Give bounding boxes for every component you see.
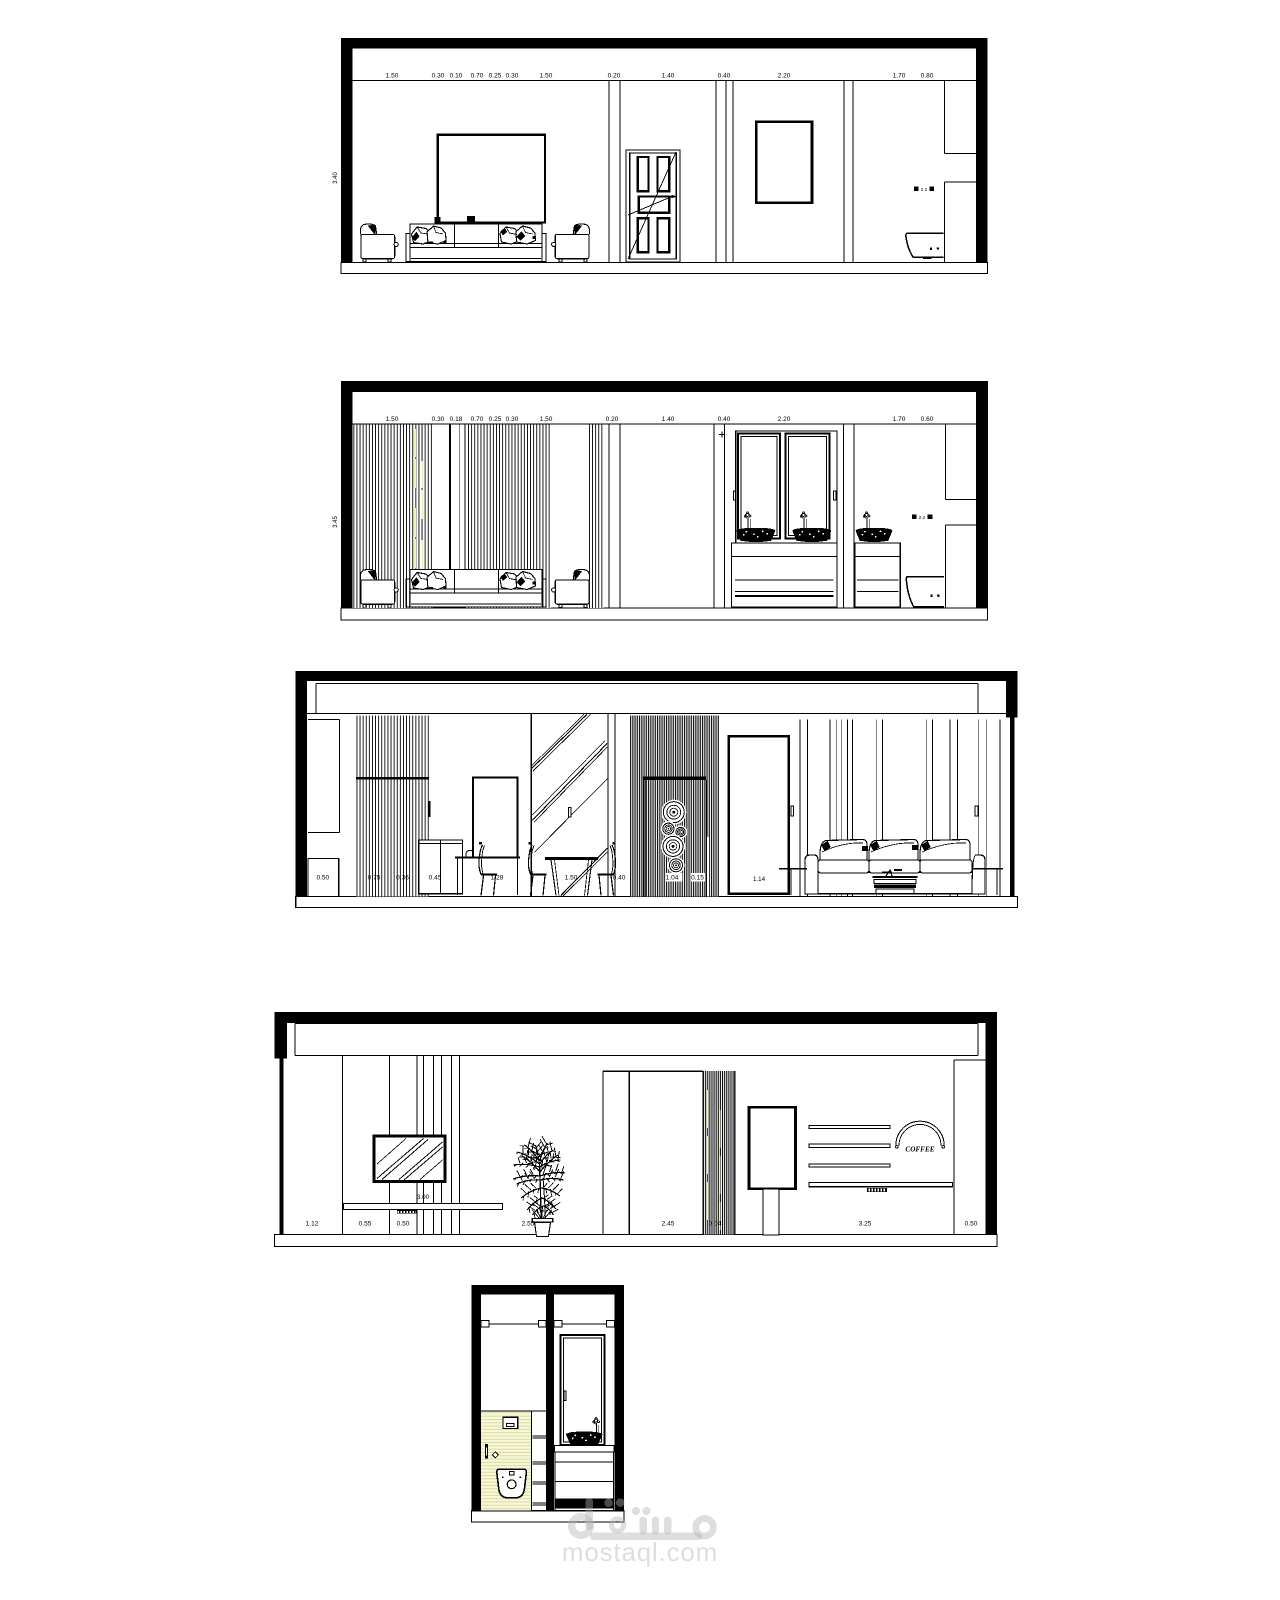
svg-text:0.40: 0.40 <box>718 73 731 80</box>
svg-text:0.50: 0.50 <box>965 1221 978 1228</box>
svg-text:2.20: 2.20 <box>778 416 791 423</box>
svg-text:0.15: 0.15 <box>691 875 704 882</box>
svg-text:3.40: 3.40 <box>333 172 339 184</box>
svg-text:0.18: 0.18 <box>450 416 463 423</box>
svg-text:1.40: 1.40 <box>662 73 675 80</box>
svg-text:0.40: 0.40 <box>718 416 731 423</box>
svg-text:0.20: 0.20 <box>606 416 619 423</box>
svg-text:1.28: 1.28 <box>491 875 504 882</box>
svg-text:0.75: 0.75 <box>368 875 381 882</box>
svg-text:1.40: 1.40 <box>662 416 675 423</box>
svg-text:0.70: 0.70 <box>471 416 484 423</box>
svg-text:0.30: 0.30 <box>506 73 519 80</box>
svg-text:0.25: 0.25 <box>489 73 502 80</box>
svg-text:1.14: 1.14 <box>753 876 766 883</box>
svg-text:3.25: 3.25 <box>859 1221 872 1228</box>
svg-text:0.30: 0.30 <box>506 416 519 423</box>
svg-text:0.36: 0.36 <box>396 875 409 882</box>
svg-text:2.55: 2.55 <box>522 1221 535 1228</box>
svg-text:0.50: 0.50 <box>397 1221 410 1228</box>
svg-text:0.50: 0.50 <box>316 875 329 882</box>
svg-text:1.50: 1.50 <box>386 73 399 80</box>
svg-text:0.55: 0.55 <box>359 1221 372 1228</box>
svg-text:1.50: 1.50 <box>540 416 553 423</box>
svg-text:1.50: 1.50 <box>565 875 578 882</box>
svg-text:1.50: 1.50 <box>386 416 399 423</box>
svg-text:2.2: 2.2 <box>921 187 928 193</box>
svg-text:3.00: 3.00 <box>417 1194 430 1201</box>
svg-text:0.10: 0.10 <box>450 73 463 80</box>
svg-text:0.60: 0.60 <box>921 416 934 423</box>
svg-text:0.40: 0.40 <box>613 875 626 882</box>
svg-text:1.50: 1.50 <box>540 73 553 80</box>
svg-text:mostaql.com: mostaql.com <box>562 1537 718 1567</box>
svg-text:0.25: 0.25 <box>489 416 502 423</box>
svg-text:COFFEE: COFFEE <box>905 1146 934 1154</box>
svg-text:1.04: 1.04 <box>666 875 679 882</box>
svg-text:1.70: 1.70 <box>893 73 906 80</box>
svg-text:0.04: 0.04 <box>709 1221 722 1228</box>
svg-text:2.45: 2.45 <box>662 1221 675 1228</box>
svg-text:2.2: 2.2 <box>919 515 926 521</box>
svg-text:0.70: 0.70 <box>471 73 484 80</box>
svg-text:1.12: 1.12 <box>306 1221 319 1228</box>
svg-text:1.70: 1.70 <box>893 416 906 423</box>
svg-text:2.20: 2.20 <box>778 73 791 80</box>
svg-text:0.20: 0.20 <box>608 73 621 80</box>
svg-text:0.30: 0.30 <box>432 73 445 80</box>
svg-text:0.45: 0.45 <box>429 875 442 882</box>
svg-text:3.45: 3.45 <box>333 516 339 528</box>
svg-text:0.30: 0.30 <box>432 416 445 423</box>
svg-text:0.80: 0.80 <box>921 73 934 80</box>
